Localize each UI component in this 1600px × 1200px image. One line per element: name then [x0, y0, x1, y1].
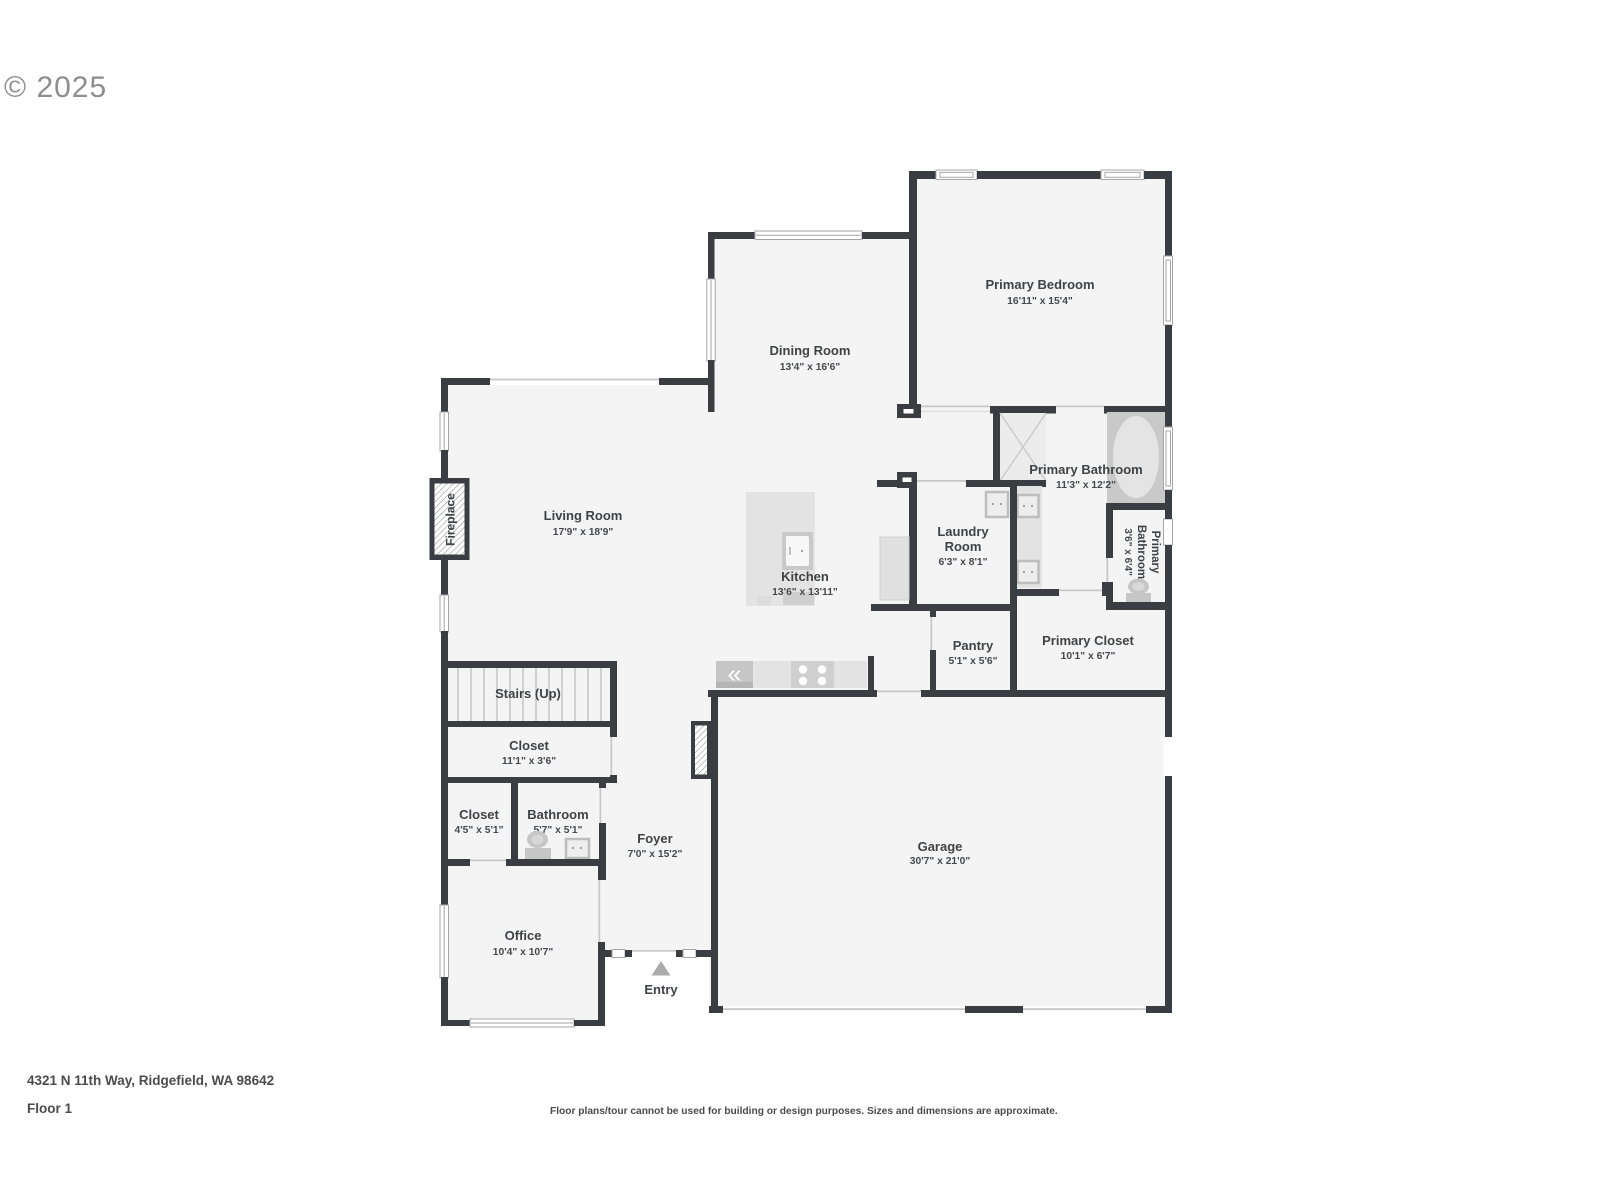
- svg-text:30'7" x 21'0": 30'7" x 21'0": [910, 856, 971, 867]
- svg-text:Garage: Garage: [918, 839, 963, 854]
- svg-text:Laundry: Laundry: [937, 524, 989, 539]
- svg-text:Stairs (Up): Stairs (Up): [495, 686, 561, 701]
- svg-text:4'5" x 5'1": 4'5" x 5'1": [454, 825, 503, 836]
- svg-text:13'4" x 16'6": 13'4" x 16'6": [780, 362, 841, 373]
- svg-text:5'1" x 5'6": 5'1" x 5'6": [948, 656, 997, 667]
- svg-text:Primary Bathroom: Primary Bathroom: [1029, 462, 1142, 477]
- svg-text:Office: Office: [505, 928, 542, 943]
- svg-text:13'6" x 13'11": 13'6" x 13'11": [772, 587, 838, 598]
- svg-text:3'6" x 6'4": 3'6" x 6'4": [1122, 528, 1133, 576]
- svg-text:10'1" x 6'7": 10'1" x 6'7": [1061, 651, 1116, 662]
- svg-text:Floor 1: Floor 1: [27, 1101, 72, 1116]
- svg-text:Living Room: Living Room: [544, 508, 623, 523]
- svg-text:17'9" x 18'9": 17'9" x 18'9": [553, 527, 614, 538]
- svg-text:10'4" x 10'7": 10'4" x 10'7": [493, 947, 554, 958]
- svg-text:Floor plans/tour cannot be use: Floor plans/tour cannot be used for buil…: [550, 1106, 1058, 1117]
- svg-text:Primary: Primary: [1149, 531, 1161, 574]
- svg-text:Closet: Closet: [509, 738, 549, 753]
- svg-text:Bathroom: Bathroom: [527, 807, 588, 822]
- svg-text:Closet: Closet: [459, 807, 499, 822]
- svg-text:4321 N 11th Way, Ridgefield, W: 4321 N 11th Way, Ridgefield, WA 98642: [27, 1073, 274, 1088]
- svg-text:Room: Room: [945, 539, 982, 554]
- svg-text:Dining Room: Dining Room: [770, 343, 851, 358]
- svg-text:7'0" x 15'2": 7'0" x 15'2": [628, 849, 683, 860]
- svg-text:11'3" x 12'2": 11'3" x 12'2": [1056, 480, 1116, 491]
- svg-text:Primary Bedroom: Primary Bedroom: [985, 277, 1094, 292]
- svg-text:Kitchen: Kitchen: [781, 569, 829, 584]
- svg-text:Foyer: Foyer: [637, 831, 672, 846]
- svg-text:Fireplace: Fireplace: [444, 493, 458, 546]
- svg-text:© 2025: © 2025: [4, 71, 107, 104]
- svg-text:Bathroom: Bathroom: [1135, 525, 1147, 579]
- svg-text:Entry: Entry: [644, 982, 678, 997]
- svg-text:Primary Closet: Primary Closet: [1042, 633, 1134, 648]
- svg-text:Pantry: Pantry: [953, 638, 994, 653]
- svg-text:«: «: [728, 660, 742, 688]
- svg-text:16'11" x 15'4": 16'11" x 15'4": [1007, 296, 1073, 307]
- svg-text:11'1" x 3'6": 11'1" x 3'6": [502, 756, 556, 767]
- svg-text:6'3" x 8'1": 6'3" x 8'1": [938, 557, 987, 568]
